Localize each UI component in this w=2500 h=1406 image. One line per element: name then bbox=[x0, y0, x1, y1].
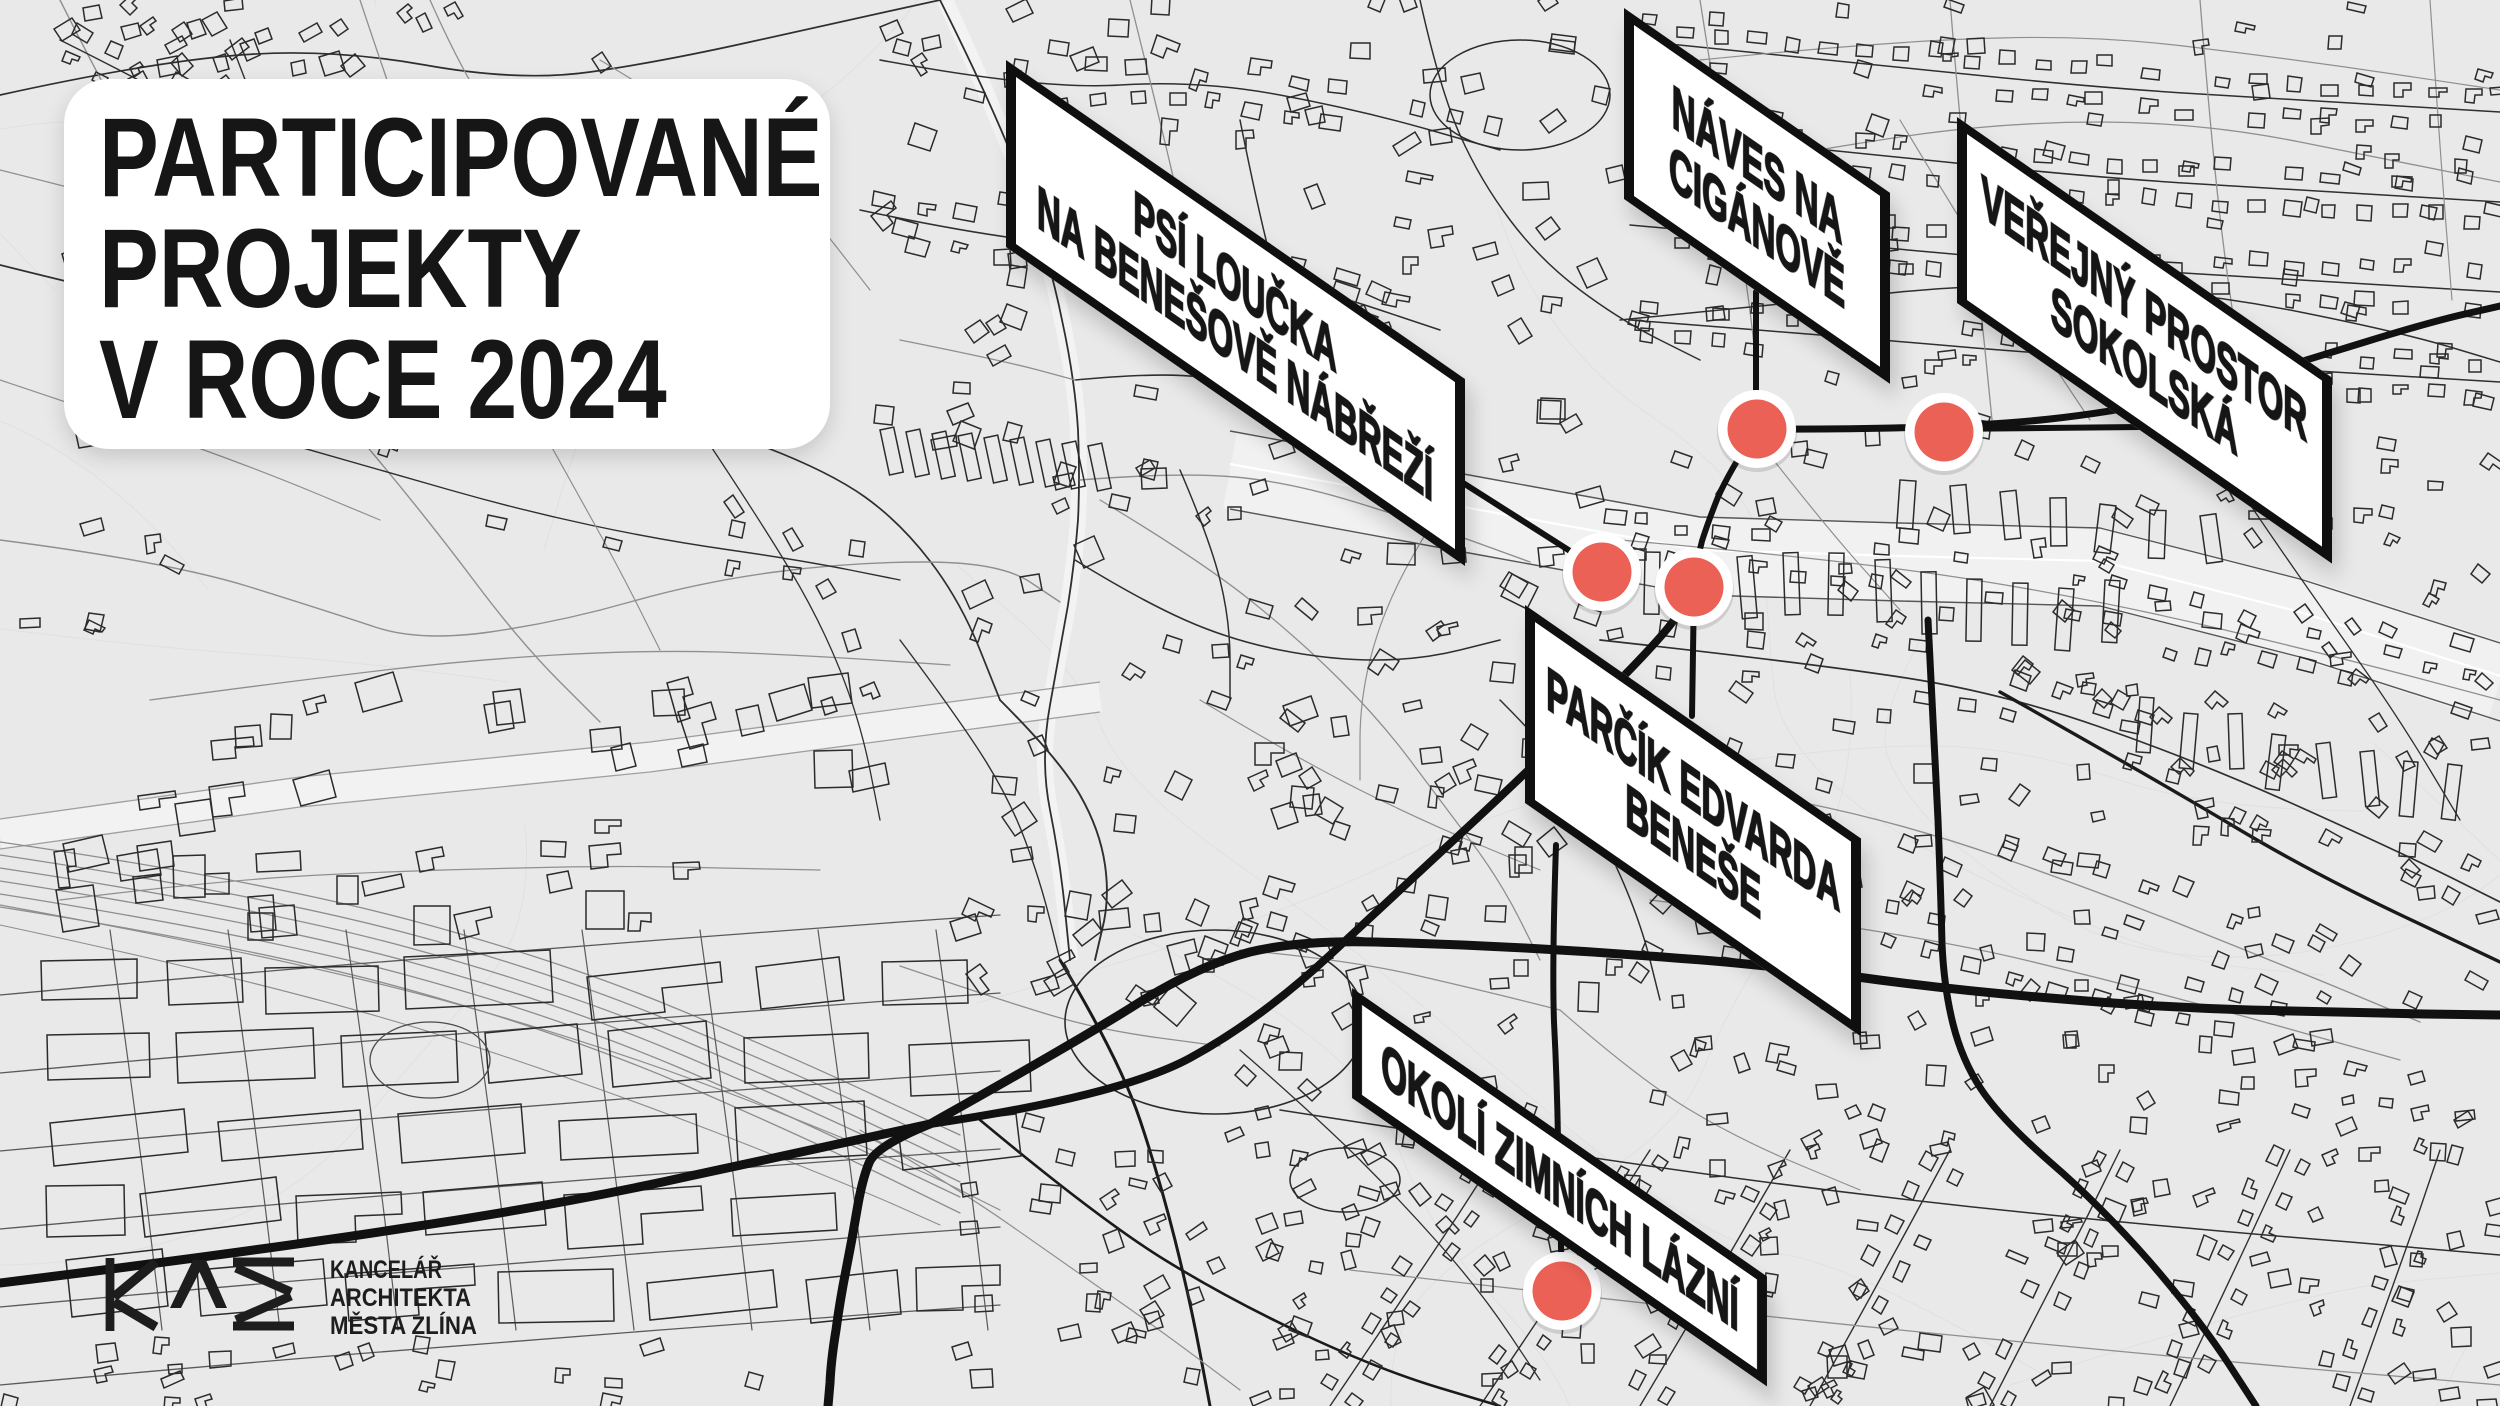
svg-text:KANCELÁŘ: KANCELÁŘ bbox=[330, 1254, 442, 1284]
svg-text:ARCHITEKTA: ARCHITEKTA bbox=[330, 1284, 471, 1312]
svg-text:MĚSTA ZLÍNA: MĚSTA ZLÍNA bbox=[330, 1310, 477, 1340]
